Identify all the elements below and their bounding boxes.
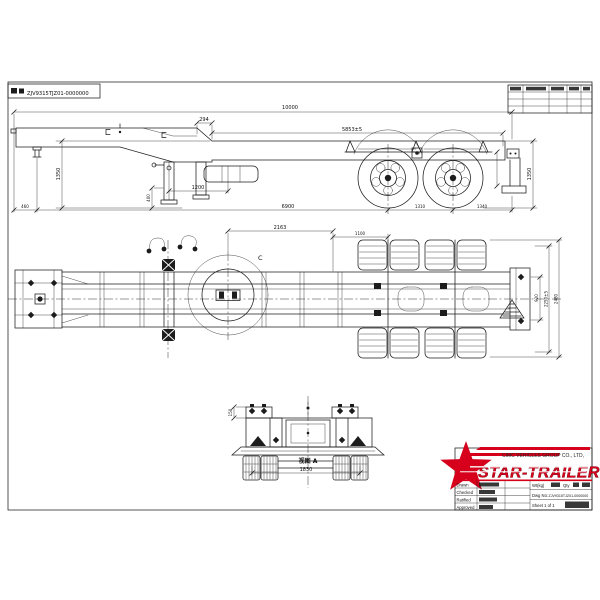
dim-gooseneck: 294 [195, 117, 214, 139]
signature-stamp [479, 490, 495, 494]
twistlock-icon [28, 312, 34, 318]
dim-kingpin-axle: 5853±5 [210, 127, 505, 146]
red-divider [455, 480, 592, 482]
svg-text:400: 400 [146, 194, 151, 202]
front-bolster [15, 270, 62, 328]
tire-plan [358, 328, 387, 358]
svg-text:1310: 1310 [415, 204, 426, 209]
row-label-ratified: Ratified [457, 498, 472, 503]
company-name: CIMC VEHICLES GROUP CO., LTD, [502, 453, 584, 459]
svg-text:2163: 2163 [274, 225, 287, 231]
svg-text:920: 920 [534, 294, 539, 302]
front-coupling [11, 129, 16, 133]
rear-view: 150 视图 A 1830 [228, 396, 384, 488]
svg-text:5853±5: 5853±5 [342, 127, 362, 133]
title-block: CIMC VEHICLES GROUP CO., LTD, STAR-TRAIL… [440, 441, 600, 510]
stamp-icon [19, 89, 24, 94]
air-hose [181, 236, 196, 248]
svg-text:460: 460 [21, 204, 29, 209]
neck-bracket [106, 130, 110, 135]
svg-text:1200: 1200 [192, 185, 205, 191]
svg-text:1830: 1830 [300, 467, 313, 473]
dim-1100: 1100 [331, 231, 390, 240]
drawing-number: ZJV9315TJZ01-0000000 [27, 91, 89, 97]
suspension-plan [374, 283, 489, 316]
illegible-stamp [526, 87, 546, 91]
dim-2480: 2480 [490, 238, 562, 359]
view-label: 视图 A [299, 457, 318, 465]
speed-slash [470, 466, 590, 468]
twistlock-icon [28, 280, 34, 286]
twistlock-icon [51, 312, 57, 318]
tire-plan [425, 328, 454, 358]
illegible-stamp [583, 87, 590, 91]
tire-rear [261, 456, 278, 480]
drawing-number-box: ZJV9315TJZ01-0000000 [8, 84, 100, 98]
twistlock-icon [518, 318, 524, 324]
svg-text:2480: 2480 [554, 293, 559, 304]
tire-rear [333, 456, 350, 480]
dim-2163: 2163 [226, 225, 335, 271]
kingpin [33, 147, 41, 157]
dim-landing-gear-height: 400 [146, 186, 163, 210]
signature-stamp [479, 498, 497, 502]
suspension [345, 130, 492, 158]
tire-rear [351, 456, 368, 480]
dim-1830: 1830 [250, 466, 362, 475]
dwg-no-label: Dwg No: [532, 493, 548, 498]
svg-text:10000: 10000 [282, 105, 298, 111]
illegible-stamp [510, 87, 521, 91]
revision-table [508, 85, 592, 113]
dim-bottom-chain: 460 6900 1310 1340 [12, 126, 514, 212]
illegible-stamp [573, 483, 579, 488]
dim-150: 150 [228, 405, 246, 420]
svg-text:150: 150 [228, 408, 233, 416]
stamp-icon [11, 88, 17, 94]
row-label-checked: Checked [457, 490, 474, 495]
tire-plan [425, 240, 454, 270]
tire-plan [457, 240, 486, 270]
row-label-approved: Approved [457, 505, 476, 510]
drawing-sheet: ZJV9315TJZ01-0000000 [0, 0, 600, 600]
support-wedge [250, 436, 266, 446]
rear-bumper [502, 149, 526, 193]
illegible-stamp [569, 87, 579, 91]
version-stamp [565, 502, 589, 509]
svg-text:1100: 1100 [355, 231, 366, 236]
support-wedge [350, 436, 366, 446]
signature-stamp [479, 505, 493, 509]
tire-plan [358, 240, 387, 270]
illegible-stamp [551, 483, 560, 488]
landing-gear-plan [147, 236, 198, 358]
dim-920: 920 [531, 275, 543, 322]
dim-overall-length: 10000 [12, 105, 514, 139]
svg-text:1350: 1350 [527, 168, 533, 181]
dim-landing-gear-position: 1200 [167, 166, 230, 193]
svg-text:1350: 1350 [56, 168, 62, 181]
dwg-no-value: ZJV9315TJZ01-0000000 [549, 494, 589, 498]
illegible-stamp [551, 87, 564, 91]
dim-unlabeled [495, 150, 499, 188]
tire-rear [243, 456, 260, 480]
twistlock-icon [51, 280, 57, 286]
side-view: 10000 294 5853±5 1350 400 1200 [11, 105, 537, 214]
sheet-label: Sheet 1 of 1 [532, 503, 555, 508]
svg-text:294: 294 [199, 117, 209, 123]
dim-height-left: 1350 [56, 139, 210, 210]
tire-plan [390, 240, 419, 270]
corner-casting-left [246, 404, 272, 418]
plan-view: C 2163 1100 9 [8, 225, 562, 359]
illegible-stamp [582, 483, 590, 488]
signature-stamp [479, 483, 499, 487]
qty-label: Qty [563, 483, 570, 488]
tire-plan [457, 328, 486, 358]
tire-plan [390, 328, 419, 358]
toolbox [204, 166, 258, 182]
weight-label: Wt(kg) [532, 483, 545, 488]
dim-height-right: 1350 [484, 139, 537, 210]
speed-slash [460, 471, 586, 472]
cross-members [100, 272, 342, 327]
landing-gear [152, 162, 209, 204]
corner-casting-right [332, 404, 358, 418]
svg-text:2250±5: 2250±5 [544, 291, 549, 308]
speed-stripe [476, 447, 590, 450]
engineering-drawing: ZJV9315TJZ01-0000000 [0, 0, 600, 600]
twistlock-icon [518, 274, 524, 280]
svg-text:6900: 6900 [282, 204, 295, 210]
detail-callout-c: C [258, 254, 263, 262]
row-label-drawn: Drawn [457, 483, 470, 488]
